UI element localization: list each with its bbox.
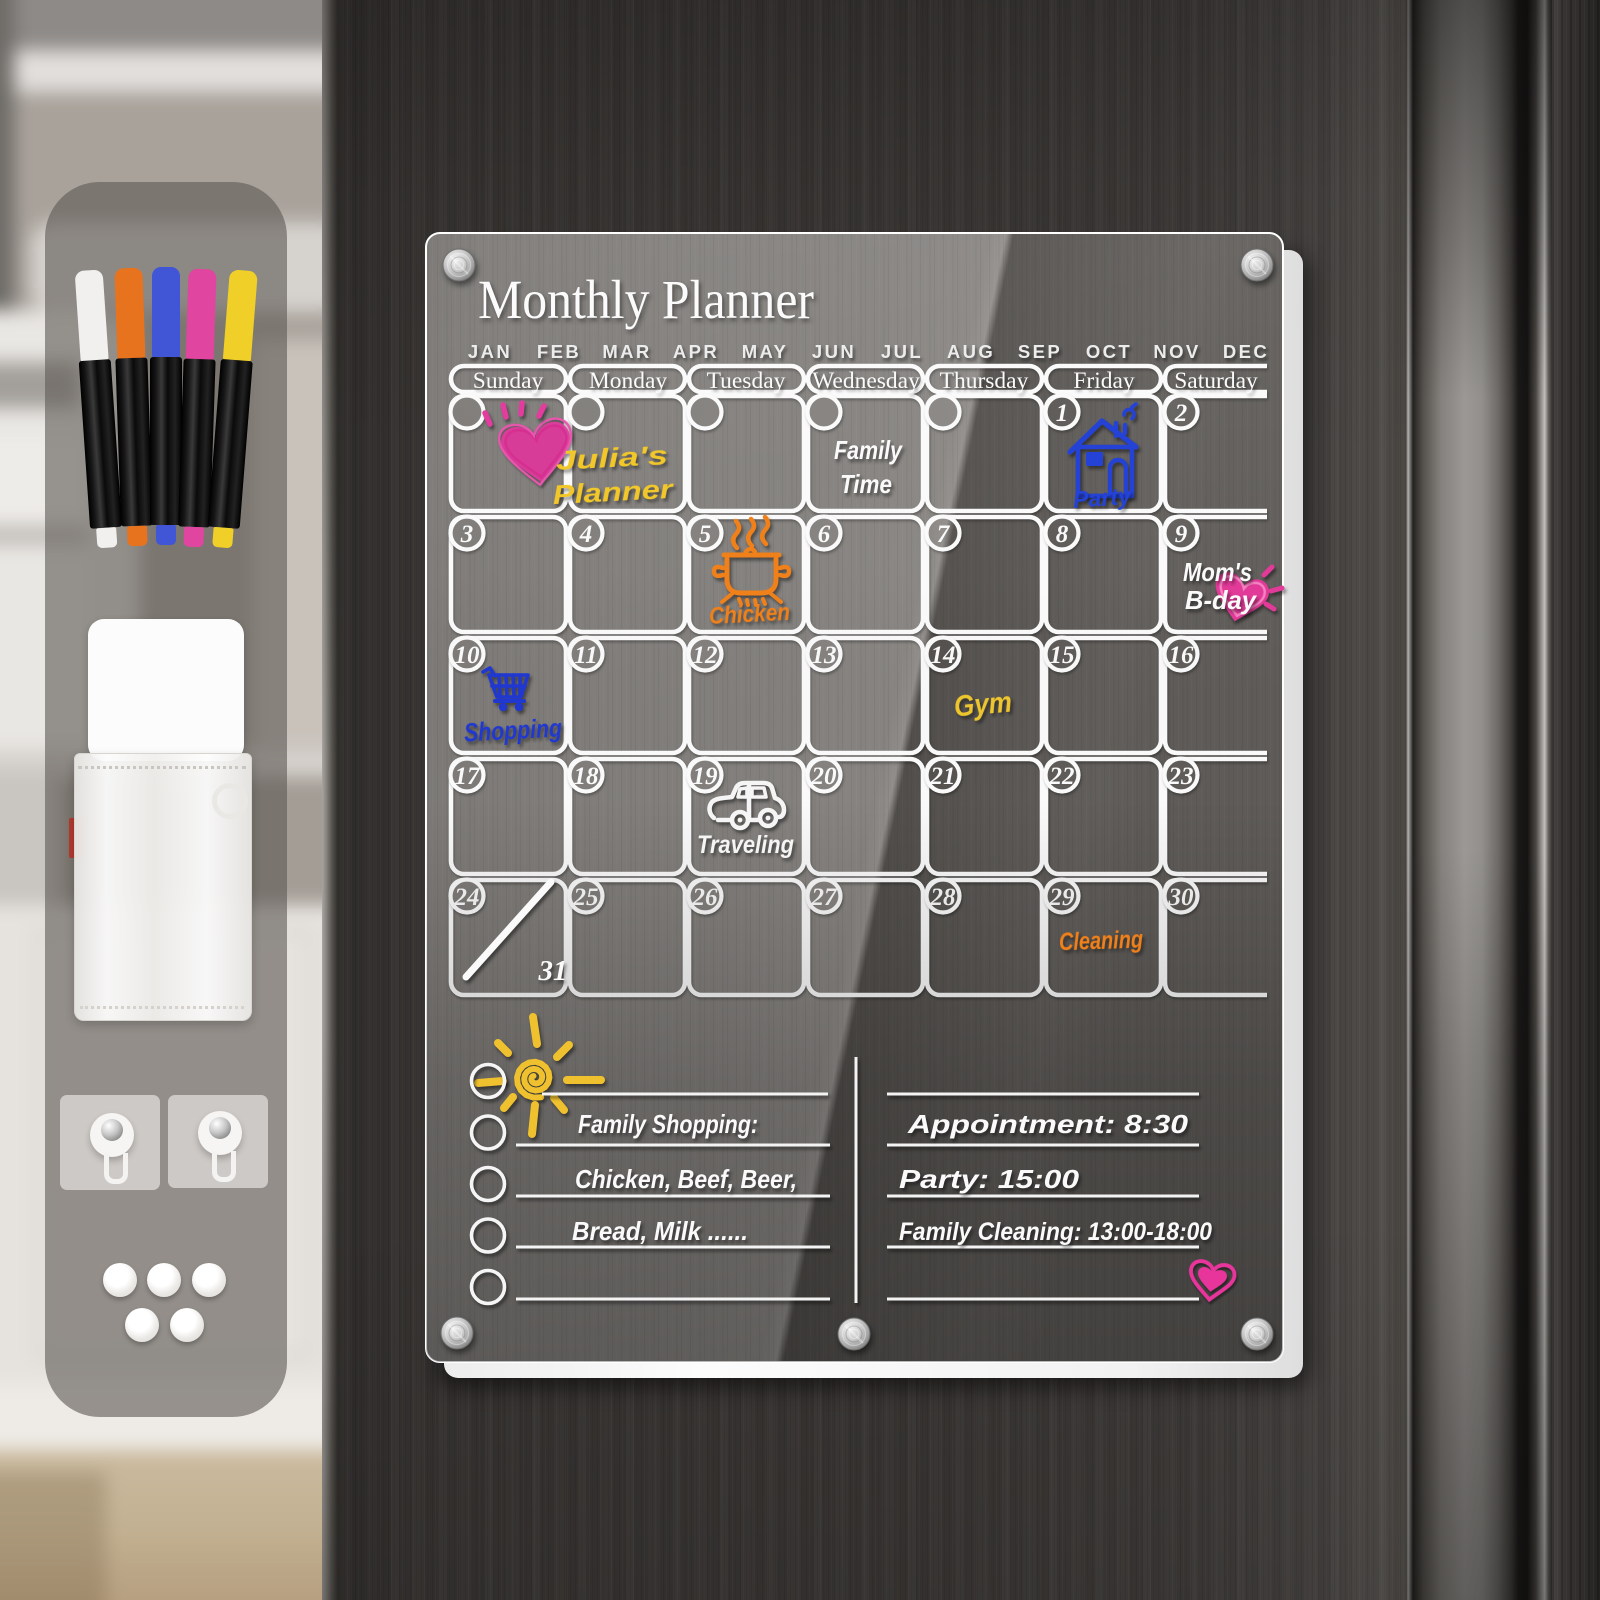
svg-text:Julia's: Julia's — [555, 440, 668, 476]
svg-text:JAN: JAN — [468, 341, 512, 362]
svg-text:Sunday: Sunday — [473, 368, 544, 394]
svg-text:Saturday: Saturday — [1174, 368, 1258, 394]
svg-text:NOV: NOV — [1153, 341, 1200, 362]
svg-text:Monday: Monday — [589, 368, 668, 394]
svg-text:Friday: Friday — [1073, 368, 1135, 394]
svg-text:Cleaning: Cleaning — [1059, 926, 1144, 957]
svg-text:B-day: B-day — [1185, 585, 1258, 615]
svg-text:Family: Family — [834, 435, 903, 465]
svg-text:Party: 15:00: Party: 15:00 — [899, 1164, 1080, 1194]
svg-text:SEP: SEP — [1018, 341, 1062, 362]
svg-text:Thursday: Thursday — [940, 368, 1029, 394]
svg-text:OCT: OCT — [1086, 341, 1132, 362]
svg-text:JUN: JUN — [812, 341, 856, 362]
svg-text:DEC: DEC — [1223, 341, 1269, 362]
svg-text:Gym: Gym — [953, 686, 1014, 724]
svg-text:Shopping: Shopping — [463, 712, 563, 747]
svg-text:JUL: JUL — [881, 341, 923, 362]
svg-text:Family Cleaning: 13:00-18:00: Family Cleaning: 13:00-18:00 — [899, 1218, 1212, 1246]
svg-text:APR: APR — [673, 341, 719, 362]
svg-text:Time: Time — [840, 469, 892, 499]
svg-text:31: 31 — [538, 955, 568, 987]
svg-text:Monthly Planner: Monthly Planner — [478, 269, 814, 330]
svg-text:Traveling: Traveling — [697, 831, 794, 859]
svg-text:Chicken: Chicken — [708, 599, 790, 630]
svg-text:Planner: Planner — [552, 474, 675, 510]
svg-text:Appointment: 8:30: Appointment: 8:30 — [907, 1109, 1189, 1139]
svg-text:Wednesday: Wednesday — [812, 368, 920, 394]
svg-text:Family Shopping:: Family Shopping: — [578, 1109, 758, 1139]
svg-text:Chicken, Beef, Beer,: Chicken, Beef, Beer, — [575, 1164, 797, 1194]
svg-text:Bread, Milk ......: Bread, Milk ...... — [572, 1216, 748, 1246]
svg-text:MAR: MAR — [602, 341, 651, 362]
svg-text:FEB: FEB — [537, 341, 581, 362]
svg-text:Party: Party — [1072, 483, 1133, 514]
svg-text:Tuesday: Tuesday — [707, 368, 786, 394]
svg-text:Mom's: Mom's — [1183, 557, 1252, 587]
svg-text:MAY: MAY — [742, 341, 789, 362]
svg-text:AUG: AUG — [947, 341, 995, 362]
